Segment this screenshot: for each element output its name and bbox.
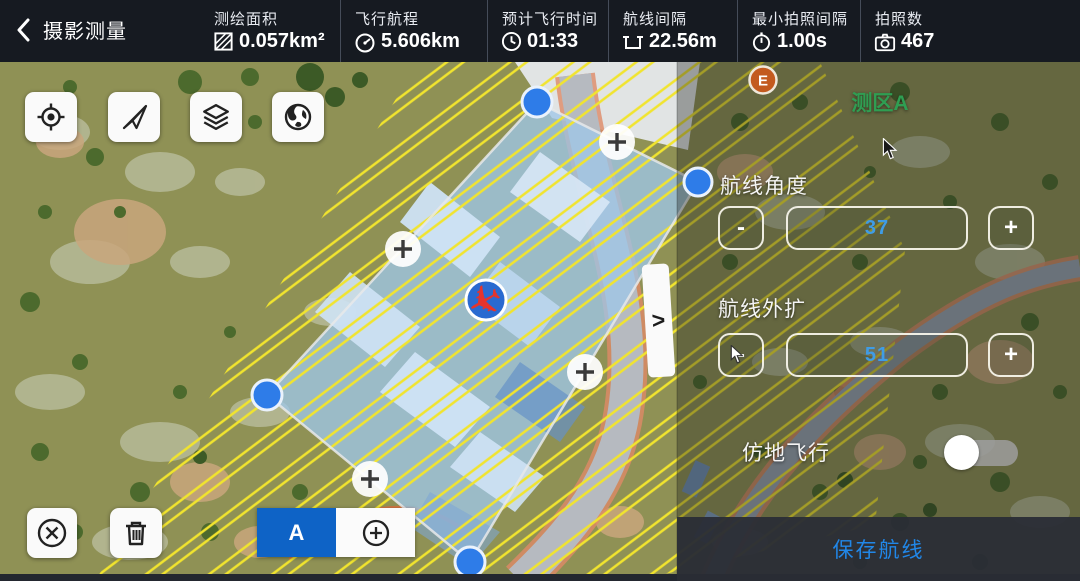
stat-min-photo-interval: 最小拍照间隔 1.00s: [737, 0, 861, 62]
stat-flight-time: 预计飞行时间 01:33: [487, 0, 609, 62]
page-title: 摄影测量: [43, 15, 127, 44]
send-route-button[interactable]: [108, 92, 160, 142]
angle-plus-button[interactable]: +: [988, 206, 1034, 250]
locate-icon: [36, 102, 66, 132]
clock-icon: [501, 31, 522, 52]
terrain-follow-label: 仿地飞行: [742, 437, 830, 467]
add-vertex-icon[interactable]: [352, 461, 388, 497]
extend-value-field[interactable]: 51: [786, 333, 968, 377]
back-button[interactable]: 摄影测量: [16, 15, 127, 44]
stopwatch-icon: [751, 31, 772, 52]
stat-line-spacing: 航线间隔 22.56m: [608, 0, 738, 62]
add-vertex-icon[interactable]: [385, 231, 421, 267]
save-route-button[interactable]: 保存航线: [677, 517, 1080, 581]
extend-plus-button[interactable]: +: [988, 333, 1034, 377]
photogrammetry-app: E ✈: [0, 0, 1080, 581]
route-extend-label: 航线外扩: [718, 293, 806, 323]
layers-icon: [201, 102, 231, 132]
svg-text:E: E: [758, 73, 768, 90]
gauge-icon: [354, 31, 376, 53]
e-marker[interactable]: E: [750, 67, 777, 94]
area-hatch-icon: [213, 31, 234, 52]
add-vertex-icon[interactable]: [599, 124, 635, 160]
camera-icon: [874, 31, 896, 53]
route-angle-label: 航线角度: [720, 170, 808, 200]
paper-plane-icon: [119, 102, 149, 132]
globe-button[interactable]: [272, 92, 324, 142]
top-bar: 摄影测量 测绘面积 0.057km² 飞行航程: [0, 0, 1080, 62]
stat-photo-count: 拍照数 467: [860, 0, 1080, 62]
cancel-area-button[interactable]: [27, 508, 77, 558]
add-vertex-icon[interactable]: [567, 354, 603, 390]
back-icon: [16, 18, 30, 42]
vertex-handle[interactable]: [455, 547, 485, 577]
zone-segmented-control: A: [257, 508, 415, 557]
locate-button[interactable]: [25, 92, 77, 142]
globe-icon: [283, 102, 313, 132]
stat-flight-distance: 飞行航程 5.606km: [340, 0, 488, 62]
extend-minus-button[interactable]: -: [718, 333, 764, 377]
trash-icon: [121, 518, 151, 548]
chevron-right-icon: >: [651, 307, 666, 335]
map-canvas[interactable]: E ✈: [0, 62, 1080, 581]
vertex-handle[interactable]: [522, 87, 552, 117]
delete-area-button[interactable]: [110, 508, 162, 558]
vertex-handle[interactable]: [252, 380, 282, 410]
add-zone-button[interactable]: [336, 508, 415, 557]
zone-a-tab[interactable]: A: [257, 508, 336, 557]
terrain-follow-toggle-knob[interactable]: [944, 435, 979, 470]
angle-value-field[interactable]: 37: [786, 206, 968, 250]
map-area[interactable]: E ✈: [0, 62, 1080, 581]
stat-survey-area: 测绘面积 0.057km²: [200, 0, 340, 62]
interval-icon: [622, 31, 644, 53]
vertex-handle[interactable]: [684, 168, 712, 196]
layers-button[interactable]: [190, 92, 242, 142]
add-circle-icon: [361, 518, 391, 548]
angle-minus-button[interactable]: -: [718, 206, 764, 250]
close-circle-icon: [36, 517, 68, 549]
zone-name-label: 测区A: [820, 87, 940, 117]
